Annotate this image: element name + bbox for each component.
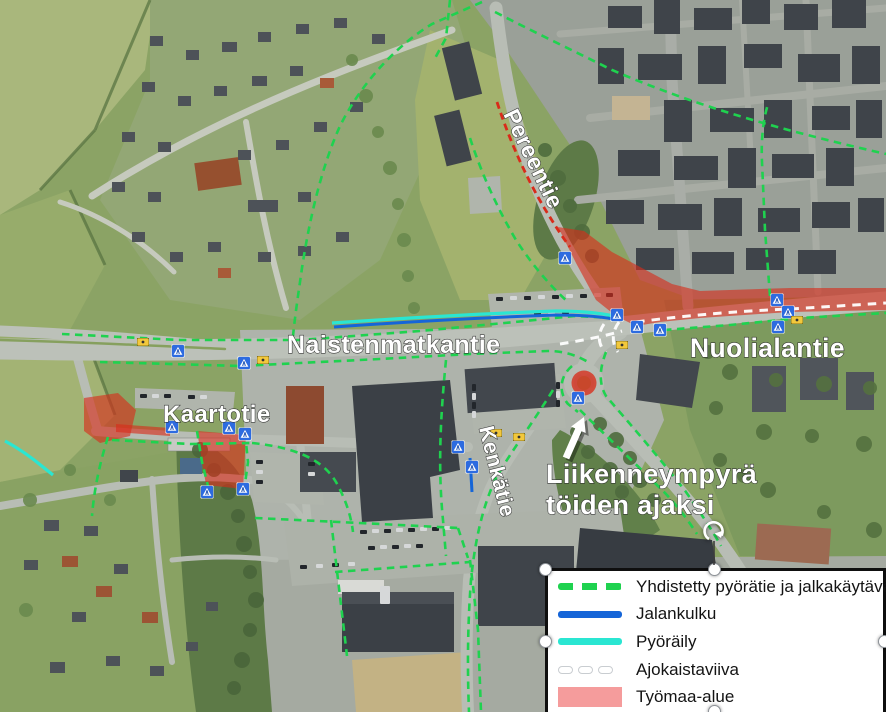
pedestrian-crossing-icon xyxy=(172,345,185,358)
legend-item-lane-marking: Ajokaistaviiva xyxy=(558,656,883,684)
legend-label: Yhdistetty pyörätie ja jalkakäytävä xyxy=(624,577,886,597)
pedestrian-crossing-icon xyxy=(654,324,667,337)
legend-label: Pyöräily xyxy=(624,632,696,652)
pedestrian-crossing-icon xyxy=(631,321,644,334)
aerial-map-page: Naistenmatkantie Nuolialantie Pereentie … xyxy=(0,0,886,712)
annotation-line1: Liikenneympyrä xyxy=(546,459,758,489)
bus-stop-icon xyxy=(257,356,269,364)
selection-handle-top-left[interactable] xyxy=(539,563,552,576)
pedestrian-crossing-icon xyxy=(772,321,785,334)
road-label-nuolialantie: Nuolialantie xyxy=(690,333,845,363)
legend-swatch-combined-path xyxy=(558,583,622,590)
bus-stop-icon xyxy=(616,341,628,349)
legend-item-cycling: Pyöräily xyxy=(558,628,883,656)
pedestrian-crossing-icon xyxy=(452,441,465,454)
legend-swatch-pedestrian xyxy=(558,611,622,618)
pedestrian-crossing-icon xyxy=(466,461,479,474)
selection-handle-left-middle[interactable] xyxy=(539,635,552,648)
legend-box[interactable]: Yhdistetty pyörätie ja jalkakäytävä Jala… xyxy=(545,568,886,712)
rotate-handle-icon[interactable] xyxy=(701,518,727,544)
legend-swatch-lane-marking xyxy=(558,666,613,674)
annotation-line2: töiden ajaksi xyxy=(546,490,715,520)
pedestrian-crossing-icon xyxy=(238,357,251,370)
pedestrian-crossing-icon xyxy=(201,486,214,499)
pedestrian-crossing-icon xyxy=(559,252,572,265)
selection-handle-bottom-center[interactable] xyxy=(708,705,721,712)
legend-item-work-area: Työmaa-alue xyxy=(558,683,883,711)
road-label-kaartotie: Kaartotie xyxy=(163,401,271,428)
selection-handle-right-middle[interactable] xyxy=(878,635,886,648)
legend-label: Jalankulku xyxy=(624,604,716,624)
road-label-naistenmatkantie: Naistenmatkantie xyxy=(287,331,500,359)
legend-label: Työmaa-alue xyxy=(624,687,734,707)
bus-stop-icon xyxy=(137,338,149,346)
pedestrian-crossing-icon xyxy=(239,428,252,441)
legend-swatch-work-area xyxy=(558,687,622,707)
legend-swatch-cycling xyxy=(558,638,622,645)
bus-stop-icon xyxy=(791,316,803,324)
pedestrian-crossing-icon xyxy=(771,294,784,307)
pedestrian-crossing-icon xyxy=(611,309,624,322)
legend-label: Ajokaistaviiva xyxy=(624,660,739,680)
bus-stop-icon xyxy=(513,433,525,441)
pedestrian-crossing-icon xyxy=(572,392,585,405)
legend-item-combined-path: Yhdistetty pyörätie ja jalkakäytävä xyxy=(558,573,883,601)
pedestrian-crossing-icon xyxy=(237,483,250,496)
legend-item-pedestrian: Jalankulku xyxy=(558,601,883,629)
rotate-handle-stem xyxy=(713,541,715,565)
